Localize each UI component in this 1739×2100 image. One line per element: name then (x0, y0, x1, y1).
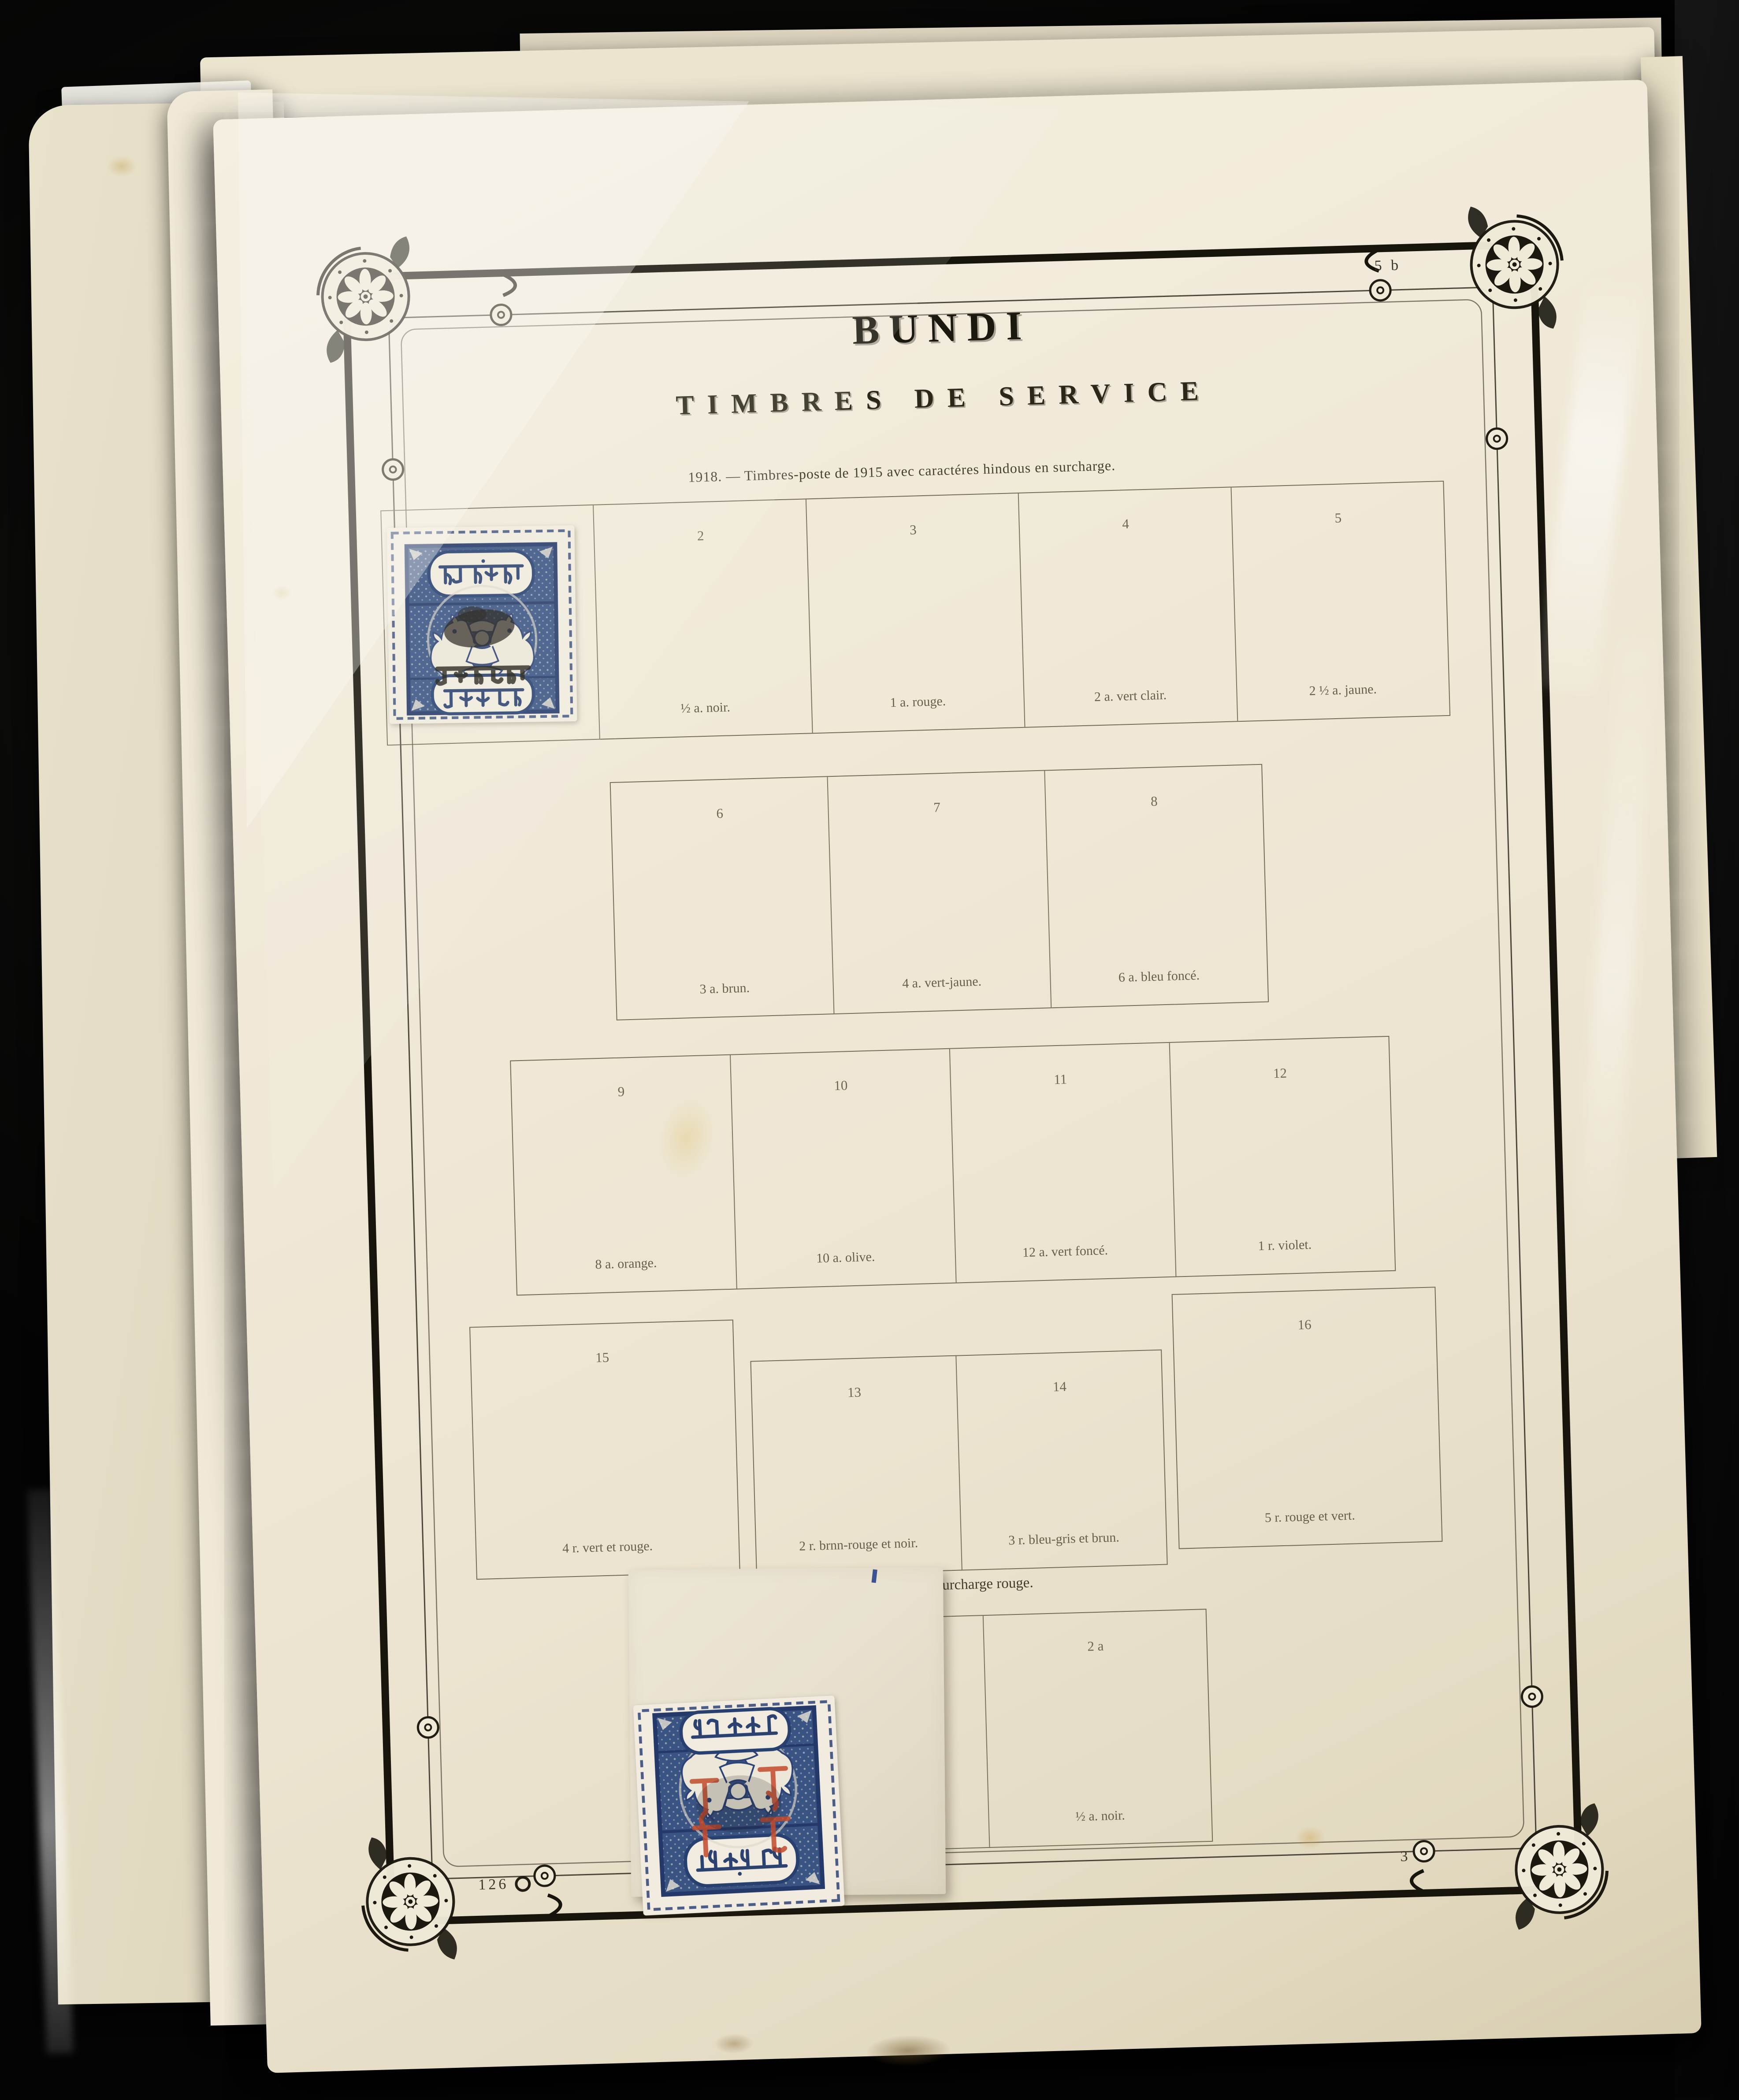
stamp-space-13[interactable]: 13 2 r. brnn-rouge et noir. (751, 1356, 962, 1576)
space-number: 5 (1232, 507, 1444, 529)
stamp-space-row-4-left: 15 4 r. vert et rouge. (469, 1320, 740, 1580)
space-number: 2 (595, 525, 806, 546)
space-number: 12 (1170, 1062, 1390, 1084)
stamp-space-9[interactable]: 9 8 a. orange. (511, 1055, 737, 1295)
space-number: 14 (957, 1376, 1162, 1398)
space-label: 5 r. rouge et vert. (1178, 1506, 1441, 1528)
space-label: 3 r. bleu-gris et brun. (962, 1529, 1167, 1550)
stamp-space-7[interactable]: 7 4 a. vert-jaune. (828, 771, 1052, 1013)
space-number: 11 (951, 1069, 1170, 1091)
space-label: ½ a. noir. (599, 698, 811, 718)
stamp-space-5[interactable]: 5 2 ½ a. jaune. (1231, 482, 1449, 721)
space-label: 8 a. orange. (516, 1254, 736, 1275)
space-label: 2 ½ a. jaune. (1237, 680, 1449, 701)
stamp-space-row-3: 9 8 a. orange. 10 10 a. olive. 11 12 a. … (510, 1036, 1396, 1296)
surcharge-space-2a[interactable]: 2 a ½ a. noir. (984, 1610, 1212, 1847)
stamp-space-10[interactable]: 10 10 a. olive. (731, 1049, 957, 1289)
register-mark-icon (515, 1876, 531, 1892)
space-label: 2 a. vert clair. (1024, 686, 1236, 706)
space-number: 8 (1046, 790, 1263, 813)
page-number: 3 (1400, 1848, 1411, 1865)
space-number: 6 (611, 802, 828, 824)
space-label: 12 a. vert foncé. (955, 1241, 1174, 1262)
stamp-space-4[interactable]: 4 2 a. vert clair. (1019, 487, 1238, 727)
space-number: 9 (512, 1081, 731, 1103)
stamp-space-row-2: 6 3 a. brun. 7 4 a. vert-jaune. 8 6 a. b… (610, 764, 1269, 1020)
stamp-space-16[interactable]: 16 5 r. rouge et vert. (1173, 1287, 1442, 1548)
stamp-space-row-4-right: 16 5 r. rouge et vert. (1172, 1287, 1443, 1549)
space-number: 2 a (984, 1635, 1207, 1657)
space-number: 16 (1173, 1313, 1436, 1336)
bundi-stamp-inverted-red-surcharge[interactable] (632, 1695, 846, 1917)
surcharge-box: 2 a ½ a. noir. (929, 1609, 1213, 1849)
space-label: 3 a. brun. (616, 978, 833, 999)
stamp-space-12[interactable]: 12 1 r. violet. (1170, 1037, 1395, 1276)
stamp-space-2[interactable]: 2 ½ a. noir. (594, 499, 813, 738)
stamp-space-14[interactable]: 14 3 r. bleu-gris et brun. (956, 1351, 1167, 1570)
space-number: 13 (752, 1382, 957, 1403)
album-page-group: 5 b 126 3 BUNDI TIMBRES DE SERVICE 1918.… (0, 0, 1739, 2100)
stamp-space-row-4-middle: 13 2 r. brnn-rouge et noir. 14 3 r. bleu… (750, 1350, 1167, 1577)
space-label: 4 a. vert-jaune. (833, 972, 1050, 993)
stamp-space-15[interactable]: 15 4 r. vert et rouge. (470, 1321, 739, 1579)
stamp-space-11[interactable]: 11 12 a. vert foncé. (950, 1043, 1176, 1283)
space-label: 1 a. rouge. (812, 692, 1024, 712)
space-number: 10 (731, 1075, 950, 1097)
photo-of-album-page: 5 b 126 3 BUNDI TIMBRES DE SERVICE 1918.… (0, 0, 1739, 2100)
space-number: 15 (471, 1346, 734, 1369)
plate-number: 126 (478, 1876, 509, 1893)
space-number: 4 (1020, 513, 1232, 534)
bundi-quarter-anna-stamp[interactable] (386, 524, 578, 725)
space-label: 6 a. bleu foncé. (1051, 966, 1267, 987)
page-code: 5 b (1374, 257, 1401, 275)
space-number: 7 (829, 797, 1045, 819)
stamp-space-3[interactable]: 3 1 a. rouge. (806, 493, 1026, 733)
space-label: 4 r. vert et rouge. (476, 1536, 739, 1559)
space-label: ½ a. noir. (989, 1806, 1211, 1827)
space-number: 3 (807, 519, 1019, 541)
space-label: 10 a. olive. (736, 1247, 955, 1269)
space-label: 1 r. violet. (1175, 1235, 1394, 1256)
stamp-space-8[interactable]: 8 6 a. bleu foncé. (1045, 765, 1268, 1008)
space-label: 2 r. brnn-rouge et noir. (756, 1535, 961, 1555)
stamp-space-6[interactable]: 6 3 a. brun. (611, 777, 835, 1020)
